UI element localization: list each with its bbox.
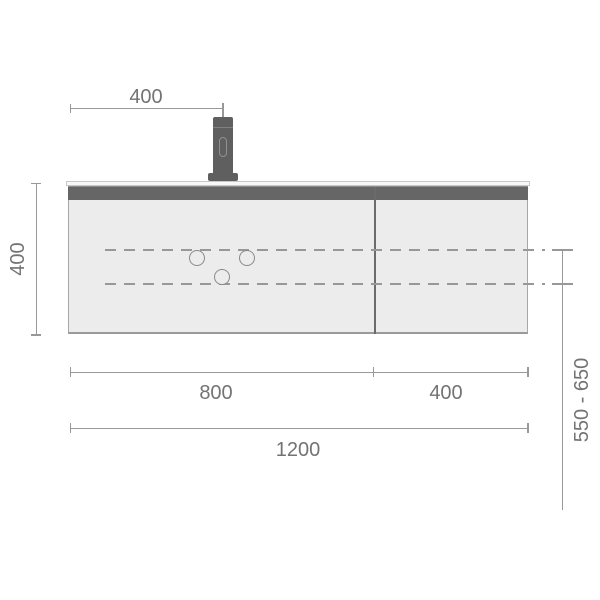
dim-left-section-label: 800 <box>199 383 232 403</box>
dim-total-width-tick-left <box>70 423 72 433</box>
hole-circle-left <box>189 250 205 266</box>
dim-height-line <box>36 183 38 335</box>
cabinet-body <box>68 200 528 334</box>
cabinet-section-divider <box>374 187 376 334</box>
faucet-handle <box>219 137 227 157</box>
dim-faucet-offset-label: 400 <box>129 87 162 107</box>
dim-mount-line <box>562 249 564 510</box>
upper-dashed-line <box>105 249 545 251</box>
dim-sections-line <box>70 372 528 374</box>
dim-height-label: 400 <box>8 242 28 275</box>
dim-total-width-line <box>70 428 528 430</box>
dim-height-tick-bottom <box>31 334 41 336</box>
countertop <box>66 181 530 186</box>
dim-right-section-label: 400 <box>429 383 462 403</box>
dim-sections-tick-left <box>70 367 72 377</box>
cabinet-top-band <box>68 186 528 200</box>
dim-height-tick-top <box>31 183 41 185</box>
dim-mount-label: 550 - 650 <box>572 358 592 443</box>
dim-total-width-tick-right <box>527 423 529 433</box>
dim-faucet-offset-tick-left <box>70 104 72 113</box>
faucet-seam-line <box>213 127 233 128</box>
faucet-base <box>208 173 238 181</box>
dim-faucet-offset-tick-right <box>222 103 224 117</box>
technical-drawing-canvas: 400 400 550 - 650 800 400 1200 <box>0 0 600 600</box>
dim-total-width-label: 1200 <box>276 440 321 460</box>
dim-sections-tick-middle <box>373 367 375 377</box>
lower-dashed-line <box>105 283 545 285</box>
dim-sections-tick-right <box>527 367 529 377</box>
hole-circle-right <box>239 250 255 266</box>
hole-circle-bottom <box>214 269 230 285</box>
